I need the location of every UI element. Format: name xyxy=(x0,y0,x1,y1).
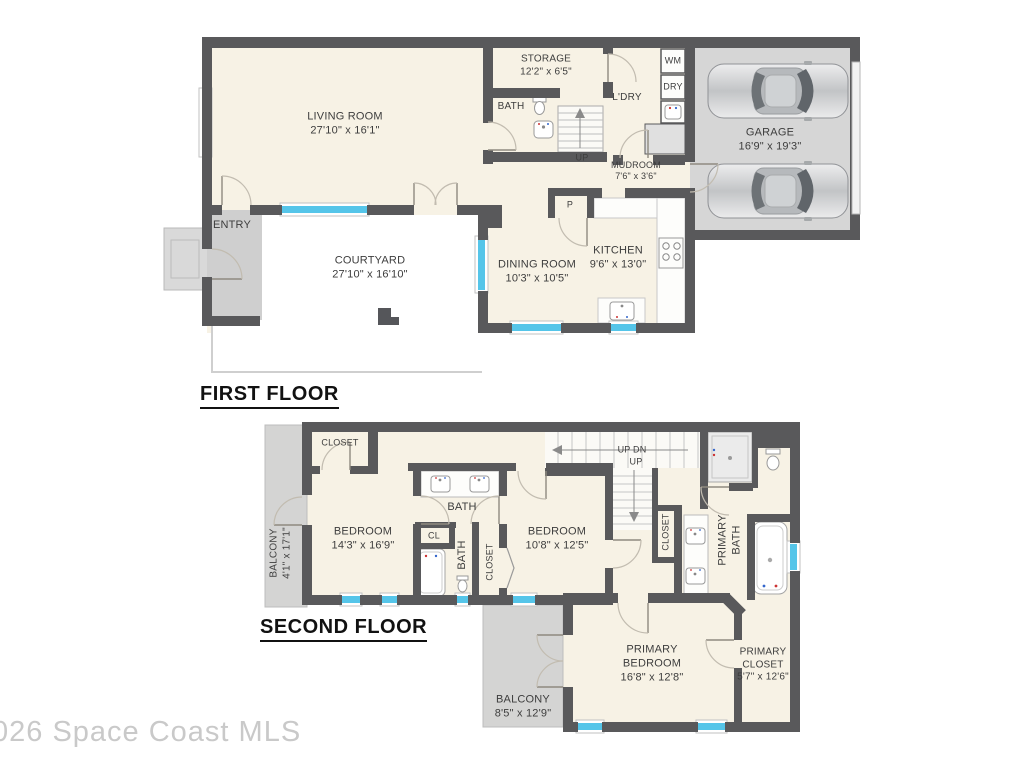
vanity-double-sink xyxy=(421,471,499,497)
bathtub-icon xyxy=(753,522,787,594)
bathtub-icon xyxy=(417,549,445,596)
sink-icon xyxy=(534,121,553,138)
stairs-icon xyxy=(558,106,603,152)
shower-icon xyxy=(708,432,752,482)
washer-box xyxy=(661,49,685,73)
first-floor-plan xyxy=(164,37,860,373)
kitchen-counter xyxy=(594,198,657,218)
balcony-bottom-floor xyxy=(483,605,563,727)
entry-floor xyxy=(207,210,262,320)
second-floor-plan xyxy=(265,422,800,733)
vanity-double-sink xyxy=(684,515,708,595)
toilet-icon xyxy=(533,97,546,115)
garage-car-icon xyxy=(708,161,848,221)
floor-plan-page: LIVING ROOM27'10" x 16'1" STORAGE12'2" x… xyxy=(0,0,1024,768)
sink-icon xyxy=(610,302,634,320)
toilet-icon xyxy=(457,576,468,592)
mls-watermark: 026 Space Coast MLS xyxy=(0,716,301,749)
garage-car-icon xyxy=(708,61,848,121)
hall-closet xyxy=(645,124,685,154)
sink-icon xyxy=(665,105,681,119)
balcony-left-floor xyxy=(265,425,307,607)
stove-icon xyxy=(659,238,683,268)
first-floor-title: FIRST FLOOR xyxy=(200,383,339,409)
dryer-box xyxy=(661,75,685,99)
second-floor-title: SECOND FLOOR xyxy=(260,616,427,642)
floor-plan-graphic xyxy=(0,0,1024,768)
garage-door xyxy=(852,62,860,214)
